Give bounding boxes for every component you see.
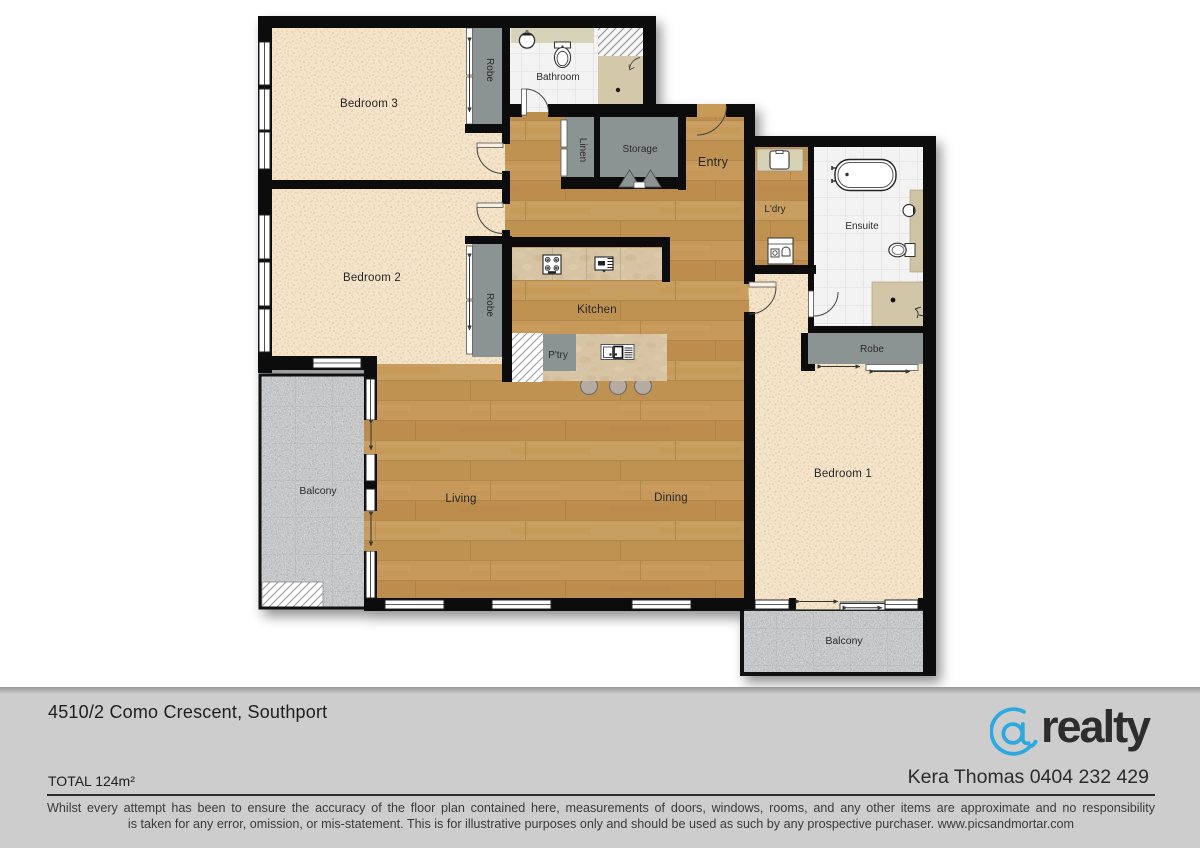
svg-text:Robe: Robe — [484, 293, 495, 317]
svg-text:L'dry: L'dry — [764, 204, 785, 215]
svg-text:P'try: P'try — [548, 350, 568, 361]
svg-text:Bedroom 2: Bedroom 2 — [343, 272, 401, 284]
svg-text:Balcony: Balcony — [299, 485, 337, 497]
svg-text:Entry: Entry — [698, 155, 729, 169]
svg-text:Bathroom: Bathroom — [536, 72, 579, 83]
svg-text:Storage: Storage — [622, 144, 657, 155]
svg-text:Linen: Linen — [577, 138, 588, 162]
svg-text:Balcony: Balcony — [825, 635, 863, 647]
svg-text:Robe: Robe — [484, 58, 495, 82]
svg-text:Dining: Dining — [654, 492, 688, 504]
svg-text:realty: realty — [1041, 704, 1151, 752]
svg-text:Ensuite: Ensuite — [845, 221, 879, 232]
svg-text:Bedroom 1: Bedroom 1 — [814, 468, 872, 480]
svg-text:Bedroom 3: Bedroom 3 — [340, 98, 398, 110]
svg-text:Robe: Robe — [860, 344, 884, 355]
svg-text:Living: Living — [445, 493, 476, 505]
svg-text:Kitchen: Kitchen — [577, 304, 617, 316]
